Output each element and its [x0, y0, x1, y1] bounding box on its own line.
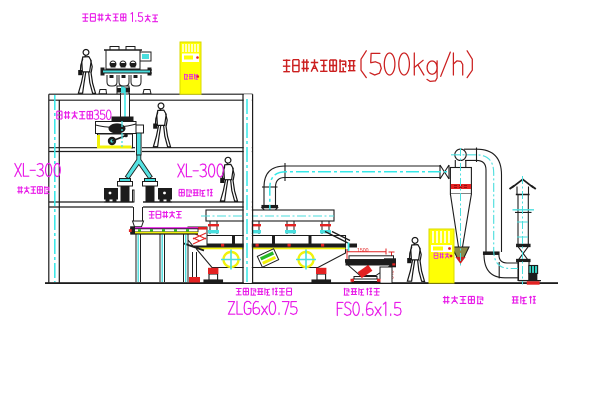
svg-text:1500: 1500 — [357, 248, 369, 254]
